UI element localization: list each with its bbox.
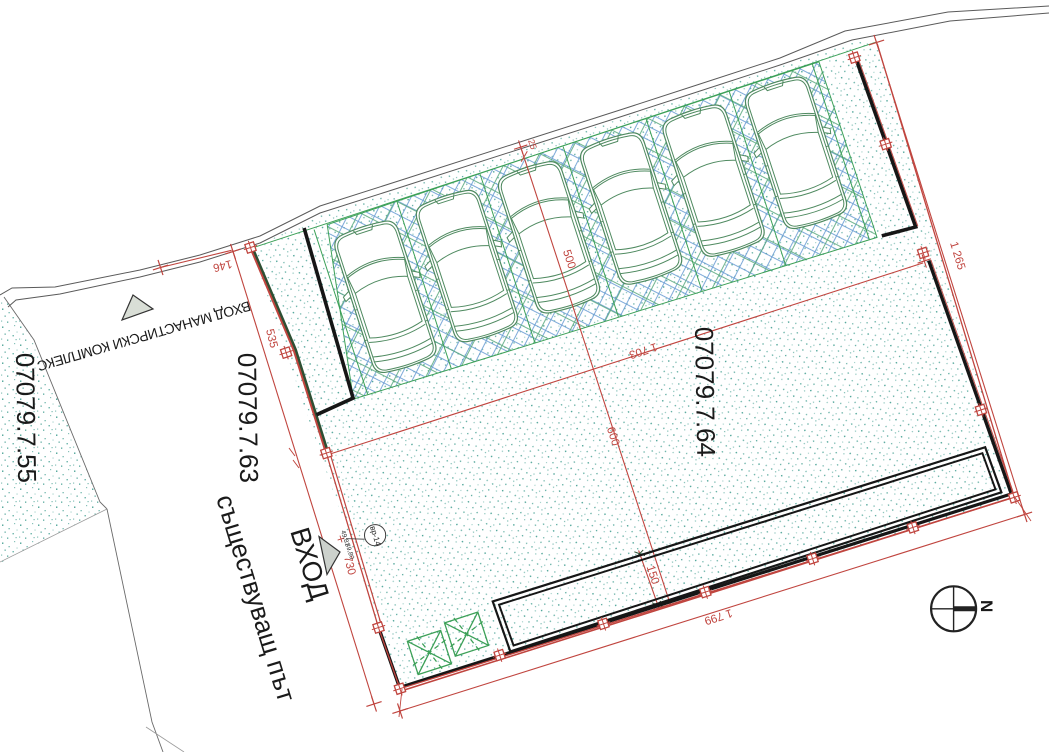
svg-text:N: N (977, 600, 996, 612)
svg-text:07079.7.63: 07079.7.63 (232, 353, 264, 484)
svg-text:07079.7.64: 07079.7.64 (689, 327, 721, 458)
svg-text:07079.7.55: 07079.7.55 (10, 353, 42, 484)
